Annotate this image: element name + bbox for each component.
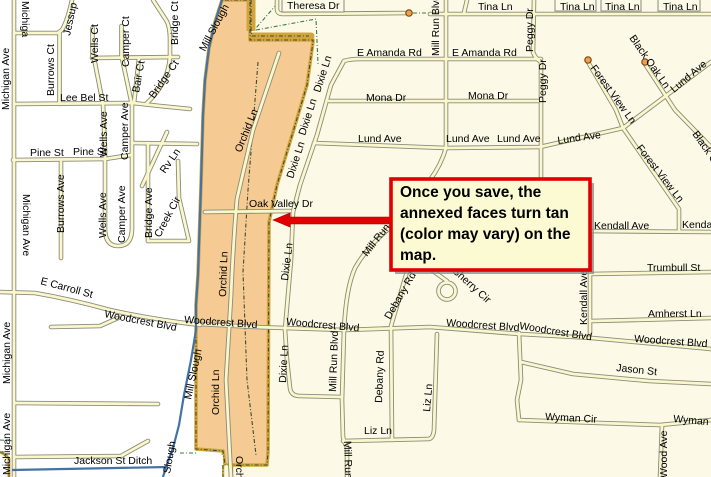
svg-text:Camper Ct: Camper Ct (120, 16, 132, 67)
svg-text:Mona Dr: Mona Dr (366, 92, 407, 104)
svg-text:Wells Ave: Wells Ave (98, 111, 110, 157)
svg-text:Michigan Ave: Michigan Ave (20, 194, 32, 256)
svg-text:Lee Bel St: Lee Bel St (60, 92, 109, 104)
svg-text:Once you save, the: Once you save, the (400, 184, 542, 201)
svg-text:Jackson St Ditch: Jackson St Ditch (74, 455, 152, 467)
svg-text:Liz Ln: Liz Ln (364, 425, 392, 437)
svg-text:Michigan Ave: Michigan Ave (1, 322, 13, 384)
svg-text:Lund Ave: Lund Ave (497, 133, 541, 145)
svg-text:Mill Run Blvd: Mill Run Blvd (341, 441, 355, 477)
svg-text:Peggy Dr: Peggy Dr (537, 59, 549, 103)
svg-text:Debany Rd: Debany Rd (373, 350, 387, 403)
svg-text:Bridge Ct: Bridge Ct (169, 1, 181, 45)
svg-text:Wells Ct: Wells Ct (89, 24, 101, 63)
svg-text:(color may vary) on the: (color may vary) on the (400, 226, 571, 243)
svg-text:Trumbull St: Trumbull St (647, 262, 700, 274)
svg-text:Michigan Ave: Michigan Ave (0, 48, 12, 110)
svg-text:Tina Ln: Tina Ln (663, 1, 698, 13)
svg-text:Lund Ave: Lund Ave (358, 133, 402, 145)
svg-text:Wells Ave: Wells Ave (97, 192, 109, 238)
svg-text:Mill Run Blvd: Mill Run Blvd (430, 0, 442, 56)
svg-text:Amherst Ln: Amherst Ln (648, 308, 702, 320)
svg-text:E Amanda Rd: E Amanda Rd (452, 47, 517, 59)
svg-text:Mona Dr: Mona Dr (468, 90, 509, 102)
svg-text:Orchid Ln: Orchid Ln (210, 369, 222, 415)
svg-text:E Amanda Rd: E Amanda Rd (357, 47, 422, 59)
svg-text:Orch: Orch (233, 456, 245, 477)
svg-text:Kendall Ave: Kendall Ave (594, 220, 649, 232)
svg-text:Michigan Ave: Michigan Ave (1, 413, 13, 475)
svg-text:map.: map. (400, 247, 436, 264)
svg-text:Dixie Ln: Dixie Ln (277, 344, 291, 383)
svg-text:Wood Ave: Wood Ave (658, 430, 670, 477)
svg-text:Tina Ln: Tina Ln (605, 1, 640, 13)
svg-text:Camper Ave: Camper Ave (119, 102, 131, 160)
svg-text:Kendall Ave: Kendall Ave (682, 219, 711, 231)
svg-text:Burrows Ave: Burrows Ave (55, 174, 67, 233)
svg-text:Liz Ln: Liz Ln (421, 383, 435, 412)
svg-text:Burrows Ct: Burrows Ct (45, 44, 57, 96)
svg-text:Peggy Dr: Peggy Dr (524, 8, 536, 52)
svg-text:annexed faces turn tan: annexed faces turn tan (400, 205, 569, 222)
svg-text:Lund Ave: Lund Ave (446, 133, 490, 145)
svg-text:Michiga: Michiga (19, 1, 31, 37)
svg-text:Theresa Dr: Theresa Dr (287, 0, 340, 12)
svg-text:Tina Ln: Tina Ln (478, 1, 513, 13)
svg-text:Camper Ave: Camper Ave (116, 185, 128, 243)
svg-text:Mill Run Blvd: Mill Run Blvd (327, 330, 341, 392)
svg-text:Oak Valley Dr: Oak Valley Dr (249, 198, 313, 210)
svg-text:Tina Ln: Tina Ln (560, 1, 595, 13)
svg-text:Pine St: Pine St (30, 147, 64, 159)
svg-text:Kendall Ave: Kendall Ave (578, 270, 590, 325)
svg-text:Orchid Ln: Orchid Ln (217, 251, 231, 297)
